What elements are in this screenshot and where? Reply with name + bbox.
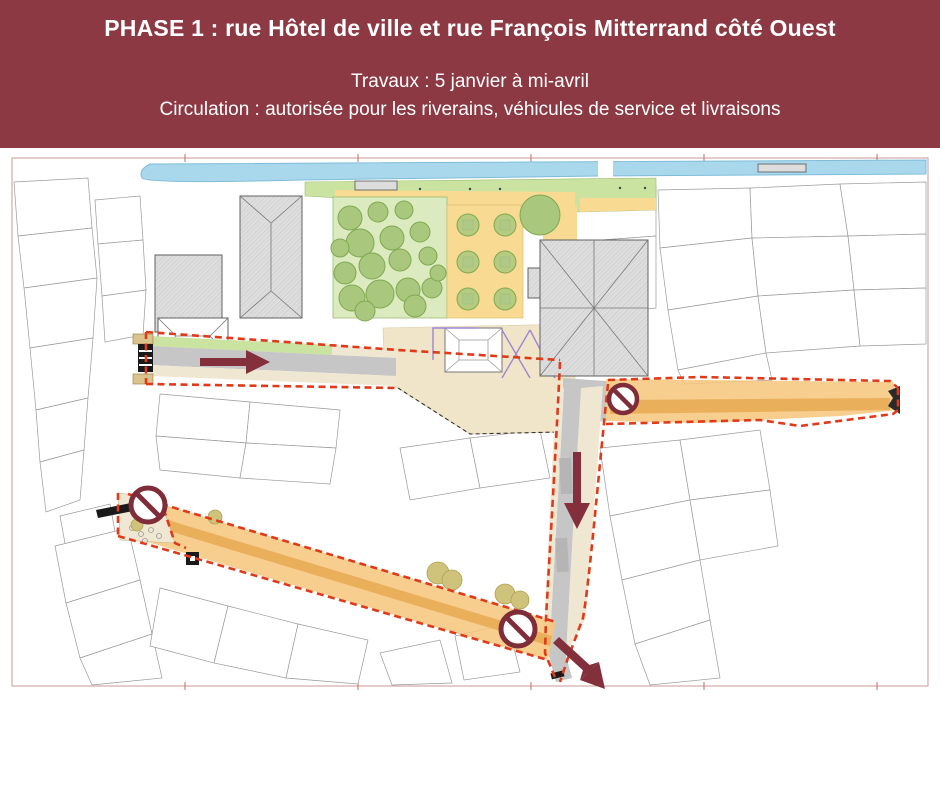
page-title: PHASE 1 : rue Hôtel de ville et rue Fran… (0, 0, 940, 42)
no-entry-mitterrand-west (131, 488, 165, 522)
crosswalk (133, 334, 153, 384)
no-entry-east (609, 385, 637, 413)
site-plan-map: TONNERRE RUES MITTERRAND, GRENIER A SEL,… (0, 148, 940, 700)
building-church (528, 240, 648, 376)
river (141, 160, 926, 182)
work-zone-east-street (606, 379, 900, 423)
no-entry-mitterrand-east (501, 612, 535, 646)
works-dates-line: Travaux : 5 janvier à mi-avril (0, 71, 940, 93)
circulation-line: Circulation : autorisée pour les riverai… (0, 99, 940, 121)
header-banner: PHASE 1 : rue Hôtel de ville et rue Fran… (0, 0, 940, 148)
market-hall-roof (445, 328, 502, 372)
legend-bar: TONNERRE : Travaux : Interdiction de cir… (0, 700, 940, 788)
map-svg (0, 148, 940, 700)
page: PHASE 1 : rue Hôtel de ville et rue Fran… (0, 0, 940, 788)
building-left-tall (240, 196, 302, 318)
